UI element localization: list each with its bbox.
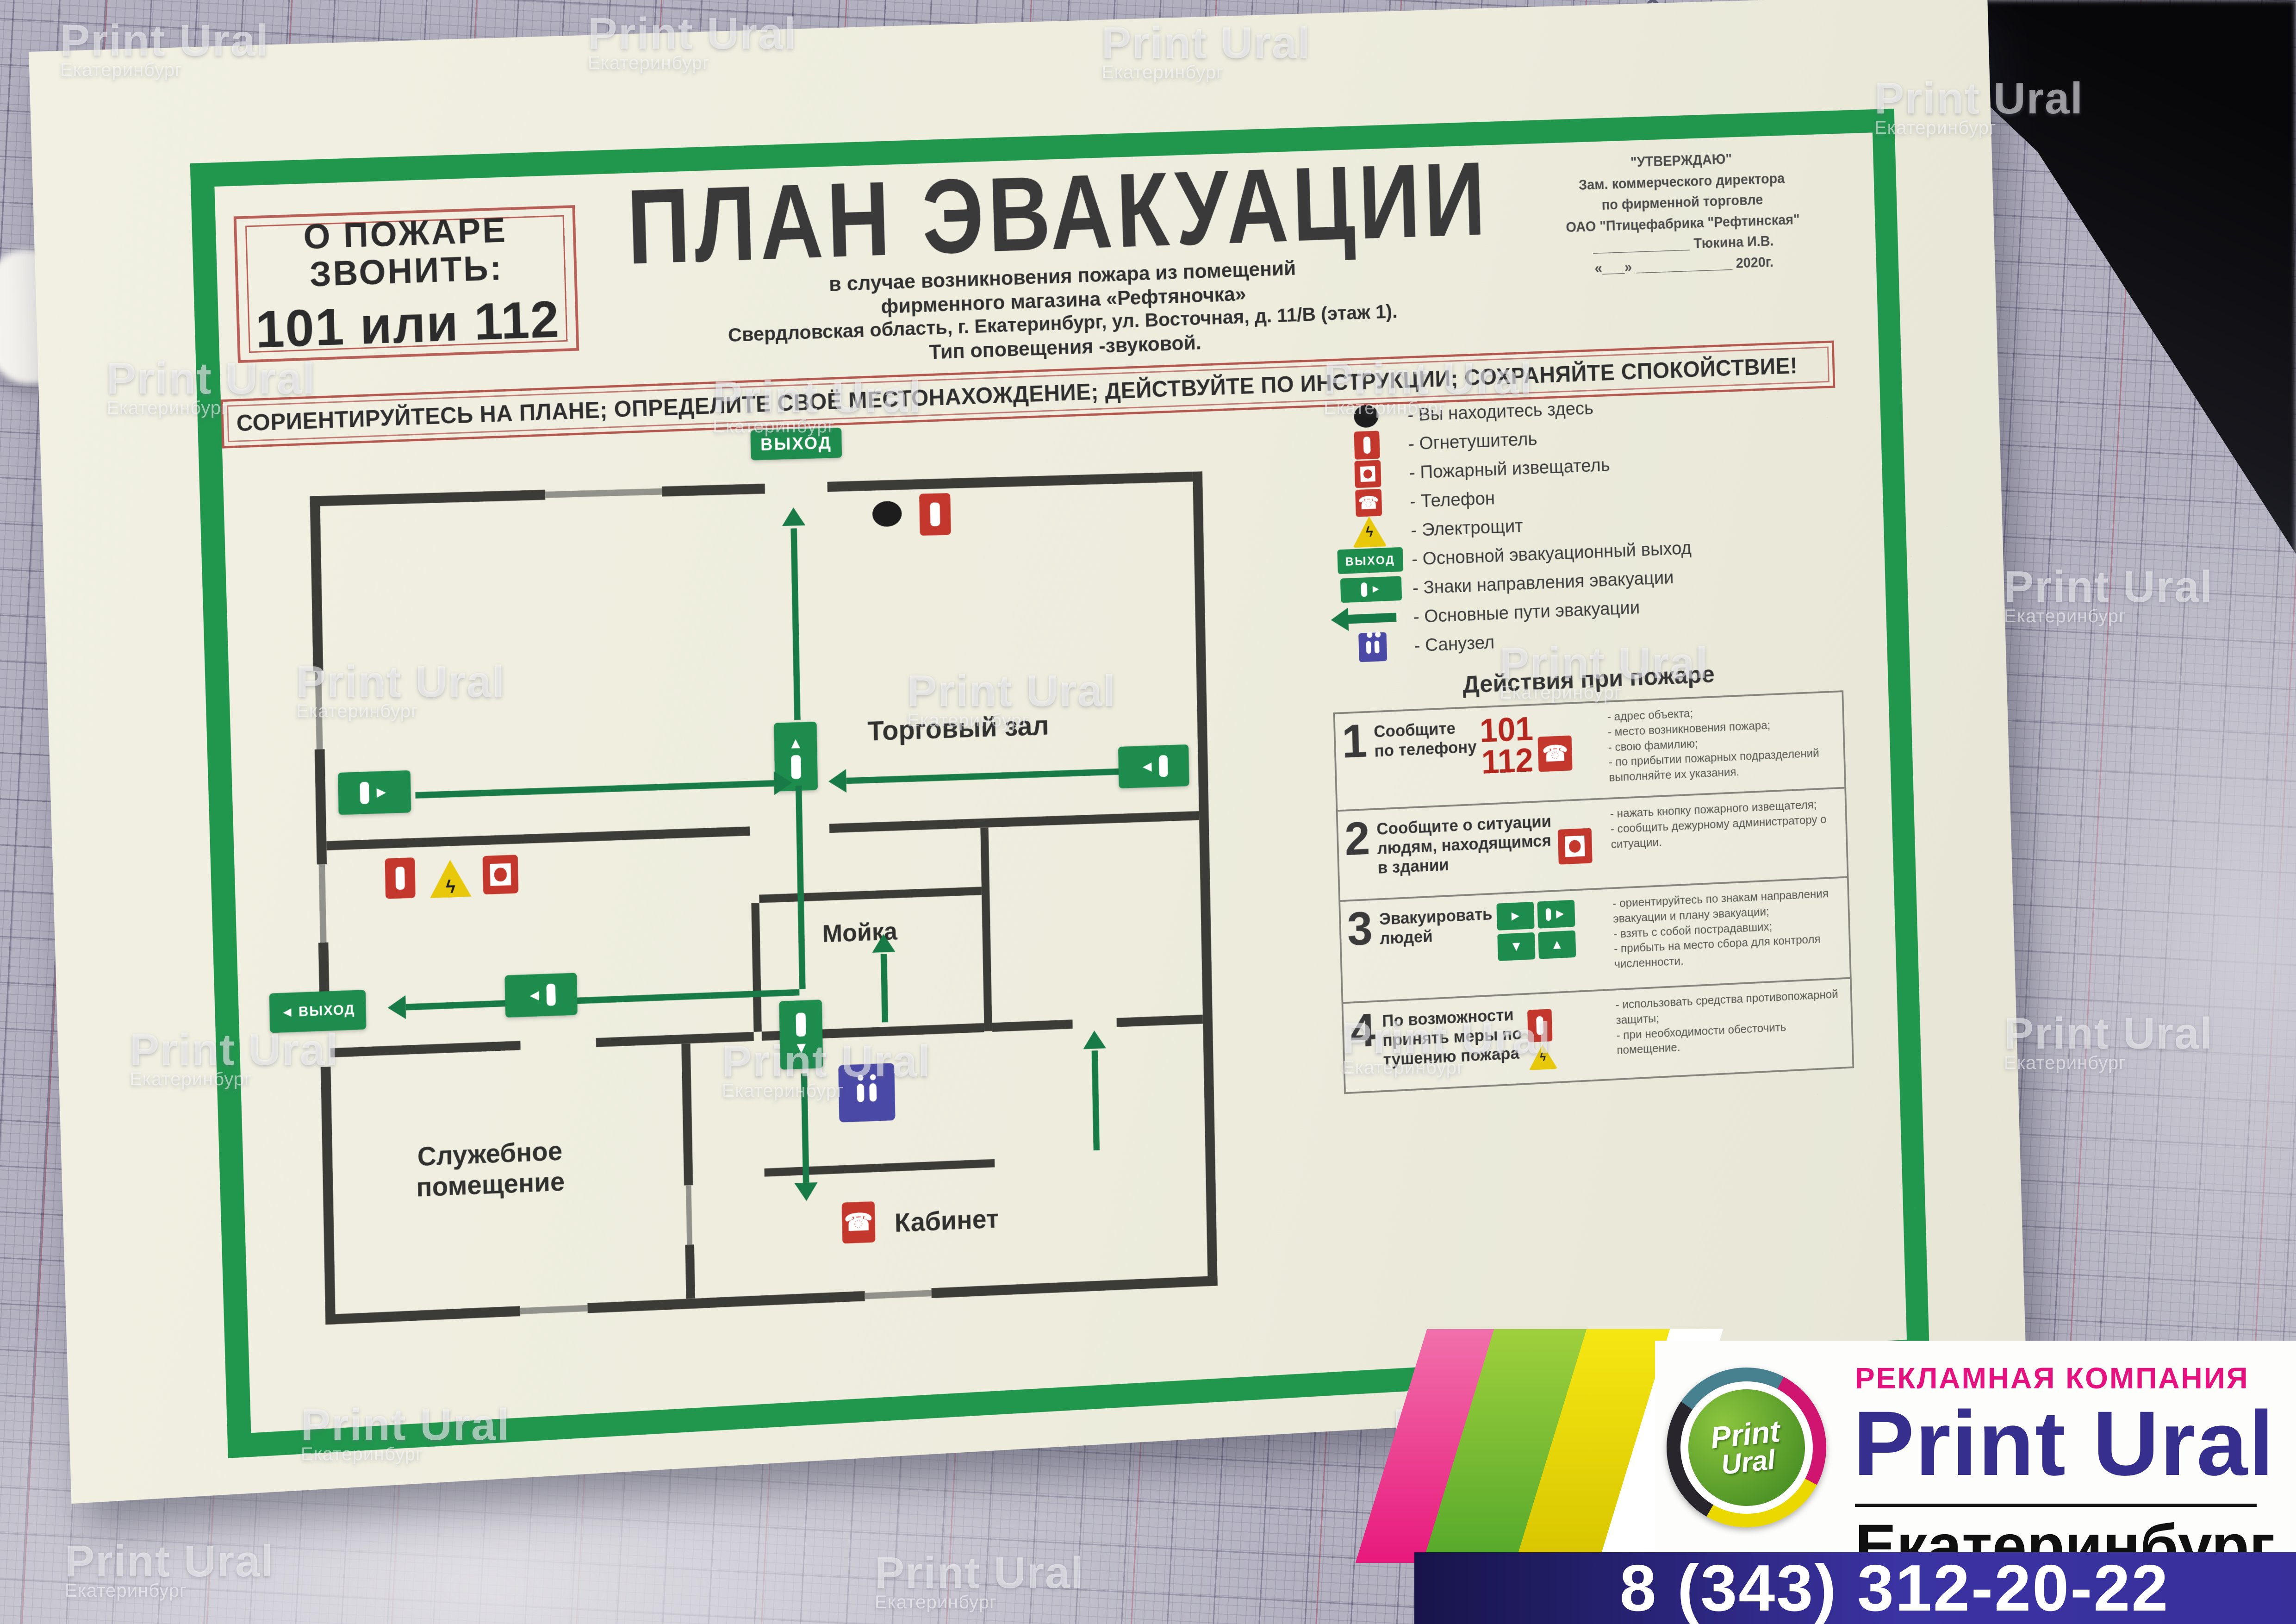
approval-block: "УТВЕРЖДАЮ" Зам. коммерческого директора… [1539,146,1825,281]
evacuation-arrow [790,528,800,720]
evacuation-arrow [801,1073,809,1183]
legend: - Вы находитесь здесь - Огнетушитель - П… [1324,384,1842,663]
direction-sign: ◄ [504,973,577,1018]
evacuation-arrowhead [774,771,792,795]
telephone-icon: ☎ [842,1201,876,1244]
evacuation-arrowhead [828,769,846,793]
evacuation-arrow [415,780,775,799]
direction-sign-icon: ► [1537,900,1575,929]
plan-wall [980,827,992,1031]
logo-inner-ring: Print Ural [1680,1381,1813,1514]
action-label: Сообщите о ситуации людям, находящимся в… [1376,812,1553,894]
plan-wall [330,1041,521,1057]
evacuation-arrowhead [782,507,805,526]
electrical-panel-icon: ϟ [1528,1043,1557,1070]
photo-canvas: 210 40 О ПОЖАРЕ ЗВОНИТЬ: 101 или 112 ПЛА… [0,0,2296,1624]
plan-wall [315,749,327,864]
direction-sign-icon: ► [1329,575,1413,603]
evacuation-arrowhead [795,1182,818,1201]
direction-sign: ► [338,770,411,815]
plan-wall [587,1291,865,1313]
electrical-panel-icon: ϟ [1327,515,1411,549]
plan-door [865,1290,932,1299]
room-label-office: Кабинет [894,1203,999,1238]
direction-sign: ◄ [1118,744,1189,788]
extinguisher-icon [1527,1009,1552,1042]
evacuation-arrow [796,786,806,989]
banner-divider [1855,1504,2257,1507]
row4-icons: ϟ [1527,1009,1557,1070]
plan-window [545,488,662,498]
fire-call-box: О ПОЖАРЕ ЗВОНИТЬ: 101 или 112 [234,205,579,363]
evacuation-arrow [846,768,1129,784]
action-row-bullets: - использовать средства противопожарной … [1612,979,1852,1079]
call-box-numbers: 101 или 112 [255,291,560,358]
plan-wall [321,1067,336,1324]
plan-wall [992,1020,1073,1032]
action-row-left: 4 По возможности принять меры по тушению… [1343,991,1615,1093]
plan-door [520,1305,587,1314]
plan-wall [759,887,982,903]
fire-alarm-icon [1326,459,1410,489]
wc-icon [1331,631,1415,663]
direction-sign: ▼ [779,999,823,1069]
plan-wall [931,1276,1217,1298]
call-box-line2: ЗВОНИТЬ: [309,250,504,294]
plan-wall [310,490,546,506]
banner-tagline: РЕКЛАМНАЯ КОМПАНИЯ [1855,1361,2249,1395]
plan-wall [764,1159,995,1177]
plan-wall [751,903,762,1032]
plan-wall [1193,471,1218,1286]
evacuation-sign-tiles: ► ► ▼ ▲ [1496,900,1577,990]
action-row-bullets: - ориентируйтесь по знакам направления э… [1610,878,1850,989]
poster-content: О ПОЖАРЕ ЗВОНИТЬ: 101 или 112 ПЛАН ЭВАКУ… [214,134,1861,1385]
plan-wall [310,496,324,671]
action-row-bullets: - нажать кнопку пожарного извещателя; - … [1607,789,1847,887]
evacuation-arrowhead [387,995,406,1020]
plan-window [315,671,323,749]
you-are-here-dot [872,501,902,527]
plan-door [686,1185,692,1245]
fire-alarm-icon [1557,828,1592,865]
evacuation-plan-poster: О ПОЖАРЕ ЗВОНИТЬ: 101 или 112 ПЛАН ЭВАКУ… [29,0,2027,1504]
plan-wall [685,1244,695,1299]
plan-wall [681,1043,693,1186]
action-row-left: 2 Сообщите о ситуации людям, находящимся… [1338,800,1609,900]
banner-phone-bar: 8 (343) 312-20-22 [1414,1552,2296,1624]
evacuation-arrow [1092,1050,1100,1150]
action-row-left: 3 Эвакуировать людей ► ► ▼ ▲ [1340,889,1612,1002]
fire-alarm-icon [483,855,519,894]
logo-green-circle: Print Ural [1682,1383,1811,1512]
direction-sign-icon: ▲ [1538,931,1576,959]
room-label-sales: Торговый зал [867,710,1049,747]
wc-icon [838,1063,895,1123]
evacuation-arrow [406,989,800,1011]
telephone-icon: ☎ [1327,488,1411,518]
emergency-numbers: 101 112 [1479,713,1535,799]
action-label: Эвакуировать людей [1379,905,1495,996]
extinguisher-icon [919,493,951,536]
banner-company-name: Print Ural [1853,1391,2275,1496]
telephone-icon: ☎ [1538,736,1573,772]
evacuation-arrowhead [1083,1030,1106,1049]
exit-sign-left: ◄ ВЫХОД [269,990,367,1033]
print-ural-banner: Print Ural РЕКЛАМНАЯ КОМПАНИЯ Print Ural… [1414,1341,2296,1624]
plan-wall [1117,1015,1203,1027]
direction-sign-icon: ▼ [1497,932,1535,961]
evacuation-arrow [881,954,888,1023]
you-are-here-icon [1325,404,1408,429]
room-label-service: Служебное помещение [381,1134,599,1205]
plan-wall [326,826,750,850]
actions-table: 1 Сообщите по телефону 101 112 ☎ [1333,690,1854,1094]
plan-wall [829,811,1199,833]
direction-sign-icon: ► [1496,902,1534,931]
green-frame: О ПОЖАРЕ ЗВОНИТЬ: 101 или 112 ПЛАН ЭВАКУ… [190,109,1930,1458]
action-label: Сообщите по телефону [1374,718,1478,804]
plan-wall [828,472,1193,492]
exit-sign: ВЫХОД [750,428,842,460]
fire-call-box-inner: О ПОЖАРЕ ЗВОНИТЬ: 101 или 112 [245,215,567,353]
action-row-bullets: - адрес объекта; - место возникновения п… [1604,692,1844,798]
path-arrow-icon [1331,612,1414,625]
extinguisher-icon [1325,430,1409,461]
extinguisher-icon [385,857,416,899]
plan-wall [662,484,765,497]
action-row-left: 1 Сообщите по телефону 101 112 ☎ [1335,702,1607,810]
banner-phone-number: 8 (343) 312-20-22 [1541,1550,2170,1624]
plan-wall [596,1032,754,1047]
title-block: ПЛАН ЭВАКУАЦИИ в случае возникновения по… [581,146,1536,376]
plan-wall [325,1306,520,1324]
plan-window [319,864,327,943]
evacuation-arrowhead [872,934,896,953]
electrical-panel-icon: ϟ [429,859,472,898]
exit-sign-icon: ВЫХОД [1328,547,1412,575]
floor-plan: Торговый зал Мойка Служебное помещение К… [241,446,1328,1351]
action-label: По возможности принять меры по тушению п… [1382,1005,1523,1086]
print-ural-logo: Print Ural [1667,1368,1826,1527]
